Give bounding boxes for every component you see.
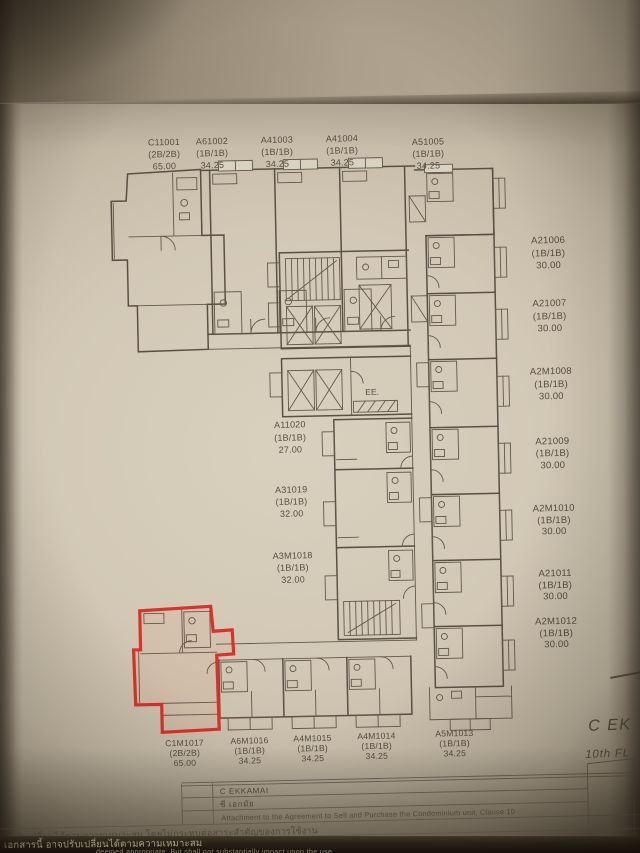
unit-type: (1B/1B) (196, 148, 228, 159)
unit-area: 34.25 (417, 160, 441, 170)
footer-project-en: C EKKAMAI (220, 786, 269, 796)
unit-id: A3M1018 (273, 550, 313, 561)
sheet-corner-title: C EK 10th FL (582, 670, 640, 761)
unit-area: 30.00 (542, 526, 567, 538)
highlighted-unit-outline (133, 606, 236, 733)
core-block: EE. (267, 250, 411, 417)
unit-label-a41004: A41004 (1B/1B) 34.25 (326, 133, 359, 168)
unit-label-a21009: A21009 (1B/1B) 30.00 (535, 436, 570, 472)
unit-type: (1B/1B) (537, 515, 571, 527)
unit-label-c1m1017: C1M1017 (2B/2B) 65.00 (165, 738, 204, 769)
unit-area: 34.25 (331, 157, 355, 167)
unit-id: A61002 (196, 136, 228, 147)
unit-id: A11020 (274, 419, 306, 430)
unit-label-a2m1012: A2M1012 (1B/1B) 30.00 (535, 616, 578, 651)
top-wing-walls (110, 155, 508, 352)
unit-type: (1B/1B) (536, 448, 570, 460)
unit-area: 34.25 (201, 160, 225, 170)
unit-type: (2B/2B) (169, 748, 200, 759)
unit-area: 34.25 (365, 751, 388, 761)
unit-id: A21009 (535, 436, 569, 448)
right-wing-walls (413, 168, 517, 731)
unit-area: 32.00 (280, 508, 304, 518)
unit-id: A2M1012 (535, 616, 577, 628)
elevator-shaft-icons (286, 284, 392, 344)
unit-label-a4m1014: A4M1014 (1B/1B) 34.25 (357, 730, 396, 761)
unit-area: 30.00 (536, 260, 561, 272)
unit-label-a2m1010: A2M1010 (1B/1B) 30.00 (533, 503, 576, 538)
unit-label-a4m1015: A4M1015 (1B/1B) 34.25 (293, 733, 332, 764)
unit-type: (1B/1B) (439, 738, 470, 749)
unit-type: (1B/1B) (277, 562, 309, 573)
unit-type: (1B/1B) (274, 432, 306, 443)
unit-id: A2M1010 (533, 503, 575, 515)
unit-label-a2m1008: A2M1008 (1B/1B) 30.00 (530, 366, 573, 403)
unit-id: A31019 (275, 484, 307, 495)
unit-id: C11001 (148, 137, 180, 148)
unit-area: 30.00 (543, 591, 568, 603)
unit-label-a21007: A21007 (1B/1B) 30.00 (532, 298, 567, 335)
corridor-walls (210, 346, 434, 660)
unit-area: 65.00 (153, 161, 177, 171)
unit-area: 27.00 (279, 444, 303, 454)
unit-id: A41003 (261, 135, 293, 146)
unit-id: A51005 (412, 136, 444, 147)
unit-type: (1B/1B) (326, 145, 358, 156)
unit-label-a21011: A21011 (1B/1B) 30.00 (538, 568, 572, 603)
elevator-room-label: EE. (365, 387, 379, 397)
unit-type: (1B/1B) (538, 580, 572, 592)
photo-of-floor-plan-sheet: EE. (0, 0, 640, 852)
unit-type: (1B/1B) (275, 496, 307, 507)
unit-id: A21011 (538, 568, 571, 580)
footer-project-th: ซี เอกมัย (220, 799, 254, 809)
middle-column-walls (322, 418, 417, 640)
unit-label-a61002: A61002 (1B/1B) 34.25 (196, 136, 229, 171)
unit-id: A21006 (531, 235, 565, 247)
unit-area: 34.25 (266, 159, 290, 169)
unit-label-a11020: A11020 (1B/1B) 27.00 (274, 419, 307, 455)
unit-area: 34.25 (443, 748, 466, 758)
unit-label-a51005: A51005 (1B/1B) 34.25 (412, 136, 445, 171)
unit-type: (1B/1B) (261, 147, 293, 158)
unit-id: A41004 (326, 133, 358, 144)
unit-area: 30.00 (537, 323, 562, 335)
unit-label-a6m1016: A6M1016 (1B/1B) 34.25 (230, 735, 269, 766)
unit-type: (1B/1B) (531, 248, 565, 260)
unit-label-a5m1013: A5M1013 (1B/1B) 34.25 (435, 728, 474, 759)
unit-type: (1B/1B) (234, 745, 265, 756)
unit-type: (1B/1B) (412, 148, 444, 159)
unit-area: 65.00 (174, 758, 197, 768)
unit-type: (2B/2B) (148, 149, 180, 160)
unit-type: (1B/1B) (534, 379, 568, 391)
unit-type: (1B/1B) (539, 628, 573, 640)
unit-area: 30.00 (544, 639, 569, 651)
unit-area: 30.00 (540, 460, 565, 472)
bottom-photo-edge: เอกสารนี้ อาจปรับเปลี่ยนได้ตามความเหมาะส… (0, 836, 640, 853)
dark-band-note-en: deemed appropriate, But shall not substa… (96, 847, 332, 853)
unit-area: 34.25 (239, 755, 262, 765)
unit-area: 32.00 (281, 574, 305, 584)
unit-area: 30.00 (539, 391, 564, 403)
unit-type: (1B/1B) (533, 311, 567, 323)
unit-area: 34.25 (302, 753, 325, 763)
unit-label-a3m1018: A3M1018 (1B/1B) 32.00 (273, 550, 314, 585)
project-name-text: C EK (588, 716, 632, 735)
unit-type: (1B/1B) (297, 743, 328, 754)
unit-id: A21007 (532, 298, 566, 310)
unit-type: (1B/1B) (361, 741, 392, 752)
unit-label-c11001: C11001 (2B/2B) 65.00 (148, 137, 181, 172)
unit-label-a41003: A41003 (1B/1B) 34.25 (261, 135, 294, 170)
floor-plan-drawing: EE. (0, 0, 640, 852)
unit-label-a21006: A21006 (1B/1B) 30.00 (531, 235, 566, 272)
floor-label-text: 10th FL (585, 747, 630, 761)
unit-id: A2M1008 (530, 366, 572, 378)
unit-label-a31019: A31019 (1B/1B) 32.00 (275, 484, 308, 519)
